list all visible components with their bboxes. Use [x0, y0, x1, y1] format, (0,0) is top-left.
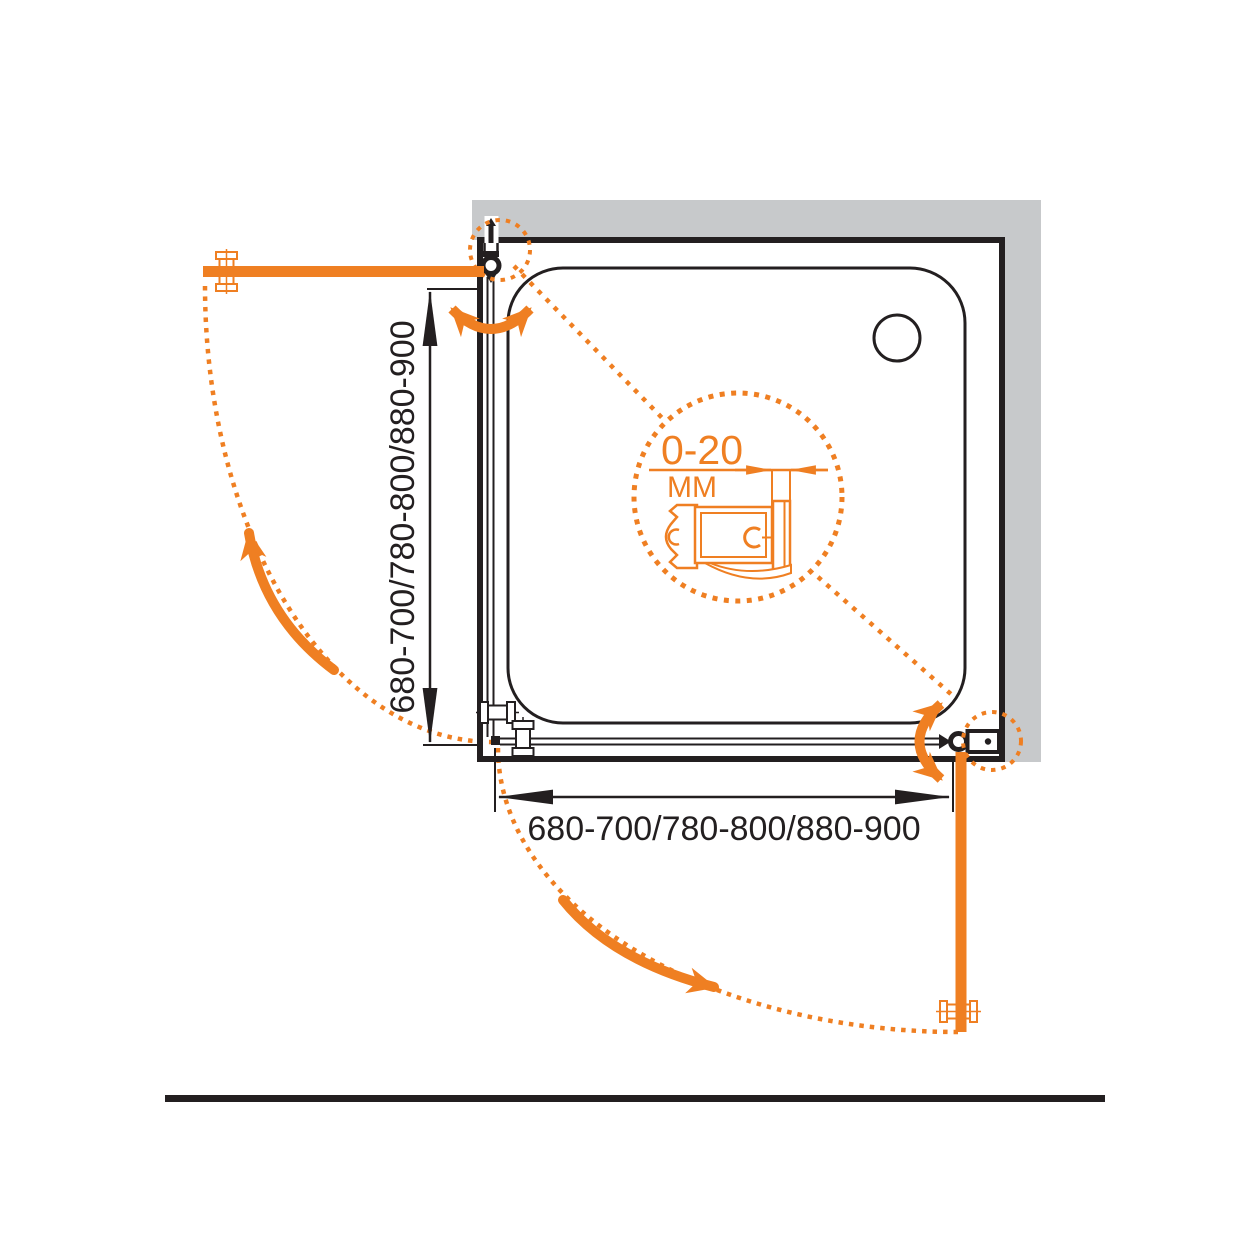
- drain-icon: [874, 315, 920, 361]
- wall-top-band: [472, 200, 1041, 240]
- hinge-bottom-right: [939, 731, 999, 752]
- diagram-svg: 680-700/780-800/880-900 680-700/780-800/…: [0, 0, 1250, 1250]
- profile-arm-outer: [695, 507, 772, 563]
- width-dimension-label: 680-700/780-800/880-900: [527, 810, 920, 848]
- glass-channel-section: [773, 501, 790, 571]
- callouts: [470, 220, 1021, 770]
- shower-enclosure-installation-diagram: 680-700/780-800/880-900 680-700/780-800/…: [0, 0, 1250, 1250]
- width-dimension: 680-700/780-800/880-900: [495, 748, 953, 848]
- hinge-pivot-knob: [483, 258, 499, 274]
- swing-path-left-door: [205, 286, 492, 742]
- left-door-handle-icon: [476, 702, 519, 723]
- rotation-arrow-top-hinge: [452, 309, 530, 329]
- swing-path-bottom-door: [498, 748, 958, 1032]
- adjustment-range-label: 0-20: [661, 427, 743, 473]
- hinge-screw-dot: [985, 738, 991, 744]
- leader-line-top: [514, 266, 668, 424]
- leader-line-bottom: [818, 577, 952, 695]
- open-door-panel: [956, 752, 967, 1032]
- open-door-panel: [203, 266, 484, 277]
- height-dimension: 680-700/780-800/880-900: [384, 289, 483, 745]
- door-left-open: [203, 249, 484, 294]
- adjustment-unit-label: MM: [667, 471, 717, 504]
- door-right-open: [936, 752, 981, 1032]
- height-dimension-label: 680-700/780-800/880-900: [384, 320, 422, 713]
- bottom-door-handle-icon: [513, 717, 534, 760]
- rotation-arrows: [249, 309, 941, 987]
- door-corner-block: [491, 736, 500, 745]
- hinge-housing: [968, 731, 1000, 752]
- open-door-handle-icon: [936, 1001, 981, 1022]
- open-door-handle-icon: [216, 249, 237, 294]
- wall-right-band: [1000, 200, 1041, 762]
